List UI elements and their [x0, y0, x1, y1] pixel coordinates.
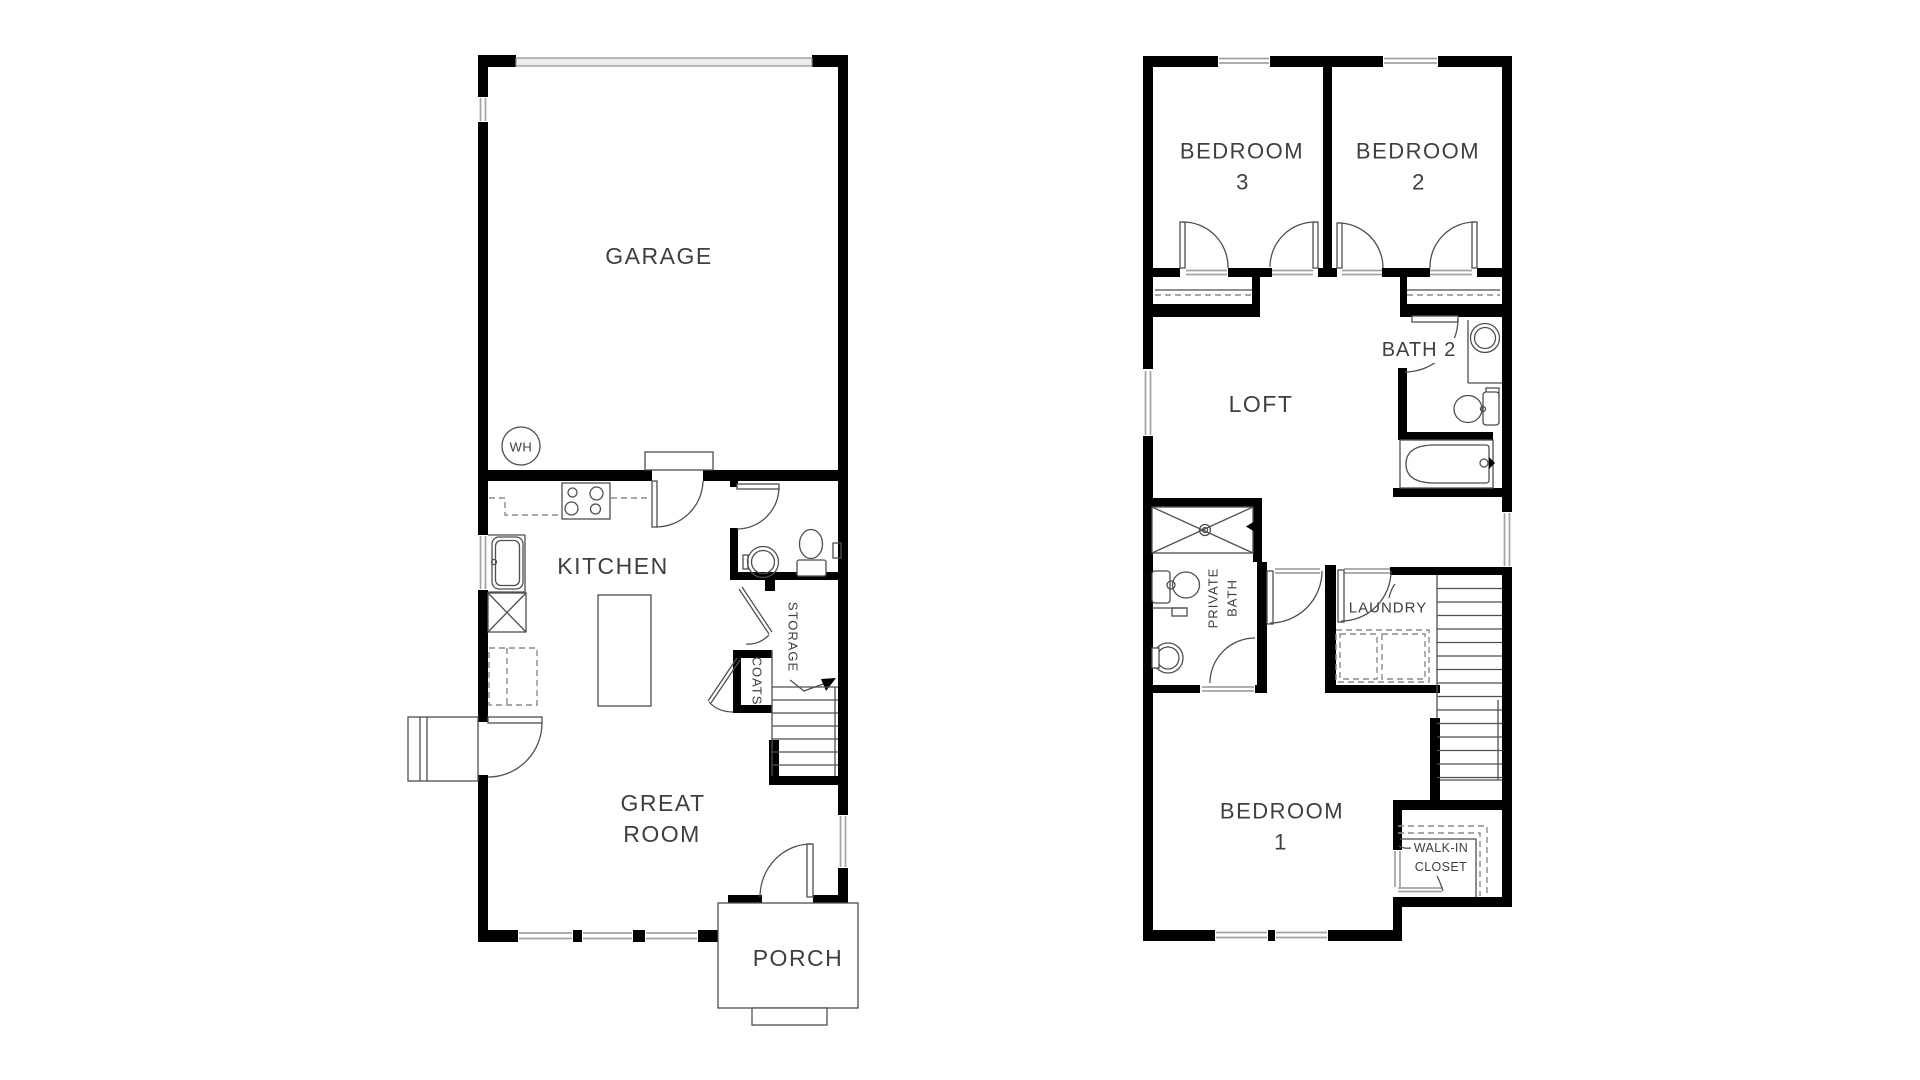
front-entry-door	[760, 844, 813, 897]
stairs-second-floor	[1437, 575, 1502, 780]
bedroom1-label-line1: BEDROOM	[1220, 799, 1344, 824]
laundry-label: LAUNDRY	[1349, 600, 1427, 617]
bath2-toilet-fixture	[1454, 392, 1499, 425]
first-floor-plan: WH	[408, 55, 858, 1025]
kitchen-island	[598, 595, 651, 706]
side-entry-door	[408, 717, 542, 781]
second-floor-plan: BEDROOM 3 BEDROOM 2 BATH 2 LOFT PRIVATE …	[1143, 56, 1512, 941]
bedroom3-label-line2: 3	[1236, 170, 1250, 195]
bedroom2-entry-door	[1337, 223, 1383, 275]
floor-plan-page: WH	[0, 0, 1920, 1080]
storage-arrow	[790, 678, 836, 691]
storage-door	[739, 587, 772, 644]
bedroom2-closet-door	[1430, 222, 1477, 275]
private-bath-label-line2: BATH	[1225, 579, 1240, 617]
private-bath-toilet-fixture	[1152, 643, 1183, 673]
bedroom2-label-line2: 2	[1412, 170, 1426, 195]
bedroom2-label-line1: BEDROOM	[1356, 139, 1480, 164]
bedroom3-closet-shelf	[1155, 290, 1252, 295]
storage-label: STORAGE	[786, 602, 801, 672]
bath2-tub-fixture	[1400, 440, 1495, 488]
washer-dryer-outline	[1336, 630, 1429, 682]
water-heater-label: WH	[510, 440, 533, 455]
powder-bath	[737, 484, 841, 578]
powder-toilet-fixture	[797, 530, 826, 577]
bedroom3-closet-door	[1180, 222, 1228, 275]
bath2-vanity-sink	[1468, 320, 1502, 397]
private-bath-label-line1: PRIVATE	[1206, 568, 1221, 629]
water-heater-symbol: WH	[502, 427, 540, 465]
garage-entry-door	[645, 452, 713, 527]
private-bath-sink-fixture	[1152, 571, 1200, 616]
floor-plan-image: WH	[0, 0, 1920, 1080]
pantry-cabinet	[488, 593, 526, 632]
bedroom2-closet-shelf	[1407, 290, 1500, 295]
bath2-label: BATH 2	[1382, 339, 1457, 361]
walk-in-closet-label-line1: WALK-IN	[1414, 841, 1468, 855]
great-room-label-line2: ROOM	[623, 821, 701, 847]
shower-fixture	[1152, 507, 1255, 553]
kitchen-room-label: KITCHEN	[557, 553, 668, 579]
porch-label: PORCH	[753, 945, 844, 971]
coats-label: COATS	[750, 657, 765, 706]
bedroom3-entry-door	[1270, 222, 1318, 275]
bedroom1-entry-door	[1267, 569, 1322, 624]
bedroom1-label-line2: 1	[1274, 830, 1288, 855]
great-room-label-line1: GREAT	[620, 790, 705, 816]
private-bath-door	[1202, 638, 1255, 691]
bedroom3-label-line1: BEDROOM	[1180, 139, 1304, 164]
cooktop-fixture	[562, 483, 610, 519]
loft-label: LOFT	[1229, 391, 1294, 417]
garage-door	[516, 58, 812, 66]
stairs-first-floor	[772, 650, 838, 776]
walk-in-closet-label-line2: CLOSET	[1415, 860, 1467, 874]
refrigerator-outline	[489, 648, 537, 705]
garage-room-label: GARAGE	[605, 243, 712, 269]
